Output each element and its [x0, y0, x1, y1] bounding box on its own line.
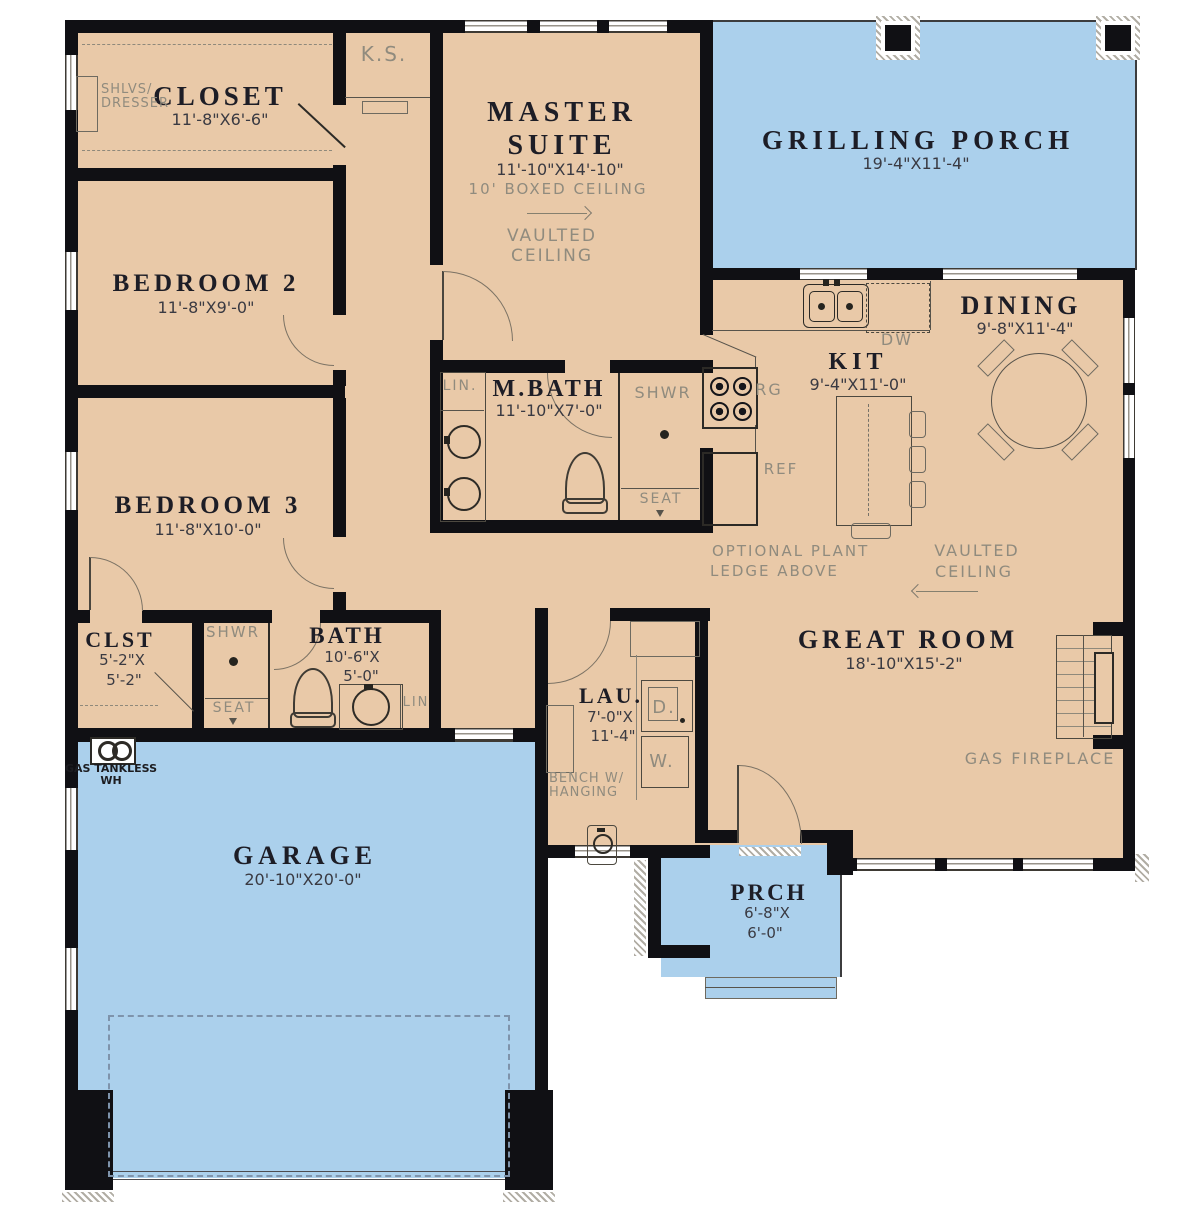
water-heater-label: GAS TANKLESS — [65, 763, 157, 775]
room-label-grilling-porch: GRILLING PORCH — [762, 126, 1074, 155]
room-label-master: MASTER — [487, 98, 637, 128]
burner — [710, 377, 729, 396]
room-label-garage: GARAGE — [233, 842, 377, 870]
wall — [867, 268, 943, 280]
sink-faucet — [834, 279, 840, 286]
plant-ledge-note: LEDGE ABOVE — [710, 563, 839, 580]
water-heater-valve — [597, 828, 605, 832]
window — [65, 252, 78, 310]
room-dims-master: 11'-10"X14'-10" — [496, 162, 623, 179]
room-label-great-room: GREAT ROOM — [798, 626, 1018, 654]
window — [857, 858, 935, 871]
room-dims-grilling-porch: 19'-4"X11'-4" — [862, 156, 969, 173]
room-dims-great-room: 18'-10"X15'-2" — [845, 656, 962, 673]
wall — [1123, 383, 1135, 395]
garage-entry-door — [455, 728, 513, 742]
range — [702, 367, 758, 429]
room-label-bath: BATH — [309, 624, 384, 648]
wall — [333, 20, 346, 105]
room-dims-clst: 5'-2" — [106, 673, 142, 689]
wall-hatch — [503, 1192, 555, 1202]
window — [65, 452, 78, 510]
window — [1123, 318, 1135, 383]
wall — [700, 20, 713, 280]
wall — [320, 610, 441, 623]
washer-label: W. — [649, 752, 674, 771]
window — [1023, 858, 1093, 871]
wall — [1123, 280, 1135, 318]
room-dims-dining: 9'-8"X11'-4" — [977, 321, 1074, 338]
water-heater-coil — [112, 741, 132, 761]
room-label-dining: DINING — [961, 292, 1082, 320]
wall — [695, 830, 738, 843]
island — [836, 396, 912, 526]
burner — [710, 402, 729, 421]
room-dims-kitchen: 9'-4"X11'-0" — [810, 377, 907, 394]
wall — [65, 310, 78, 452]
refrigerator-label: REF — [764, 462, 799, 478]
range-label: RG — [755, 382, 783, 399]
wall — [430, 20, 443, 265]
room-label-laundry: LAU. — [579, 684, 643, 707]
linen-divider — [400, 684, 401, 728]
wall — [333, 370, 346, 386]
wall — [840, 858, 857, 871]
wall — [65, 168, 345, 181]
wall — [648, 858, 661, 958]
faucet — [444, 488, 450, 496]
plant-ledge-note: OPTIONAL PLANT — [712, 543, 869, 560]
seat-marker — [656, 510, 664, 517]
window — [465, 20, 667, 33]
wall — [935, 858, 947, 871]
wall — [630, 845, 710, 858]
vaulted-note: VAULTED — [507, 227, 597, 245]
wall — [192, 623, 204, 728]
wall — [333, 592, 346, 611]
faucet — [444, 436, 450, 444]
shower-seat-line — [205, 698, 268, 699]
room-dims-garage: 20'-10"X20'-0" — [244, 872, 361, 889]
seat-marker — [229, 718, 237, 725]
wall — [535, 845, 575, 858]
shelves-label: DRESSER — [101, 97, 169, 111]
shower-seat-line — [621, 488, 699, 489]
room-dims-closet: 11'-8"X6'-6" — [172, 112, 269, 129]
linen-label: LIN — [403, 696, 430, 710]
wall — [142, 610, 272, 623]
seat-label: SEAT — [213, 701, 256, 716]
wall — [1123, 458, 1135, 870]
water-heater-label: WH — [100, 775, 121, 787]
wall — [527, 20, 540, 33]
stool — [909, 481, 926, 508]
island-dash — [868, 404, 869, 516]
vault-arrow-line — [916, 591, 978, 592]
room-label-porch: PRCH — [730, 881, 807, 905]
wall-hatch — [634, 860, 646, 956]
sink — [447, 425, 481, 459]
garage-door-outline — [108, 1015, 510, 1177]
sink — [447, 477, 481, 511]
wall — [65, 385, 345, 398]
wall — [1013, 858, 1023, 871]
sink-drain — [846, 303, 853, 310]
counter-edge — [755, 425, 756, 453]
garage-opening-line — [113, 1179, 505, 1180]
fireplace-label: GAS FIREPLACE — [965, 751, 1116, 768]
shower-head — [660, 430, 669, 439]
room-dims-bedroom2: 11'-8"X9'-0" — [158, 300, 255, 317]
room-label-bedroom2: BEDROOM 2 — [113, 271, 300, 298]
burner — [733, 402, 752, 421]
wall — [333, 181, 346, 315]
water-heater-top — [593, 834, 613, 854]
wall — [65, 20, 78, 55]
porch-post-core — [885, 25, 911, 51]
stool — [851, 523, 891, 539]
wall — [597, 20, 609, 33]
wall — [65, 1010, 78, 1090]
toilet-base — [562, 498, 608, 514]
garage-opening-line — [113, 1171, 505, 1172]
wall — [65, 850, 78, 948]
bench — [546, 705, 574, 773]
cabinet — [630, 621, 700, 657]
wall — [1093, 622, 1135, 636]
wall — [648, 945, 710, 958]
sink-faucet — [823, 279, 829, 286]
porch-step-line — [705, 987, 835, 988]
room-dims-porch: 6'-8"X — [744, 906, 790, 922]
porch-post-core — [1105, 25, 1131, 51]
wall — [610, 360, 713, 373]
wall — [535, 608, 548, 621]
vaulted-note: CEILING — [935, 564, 1013, 581]
room-dims-laundry: 7'-0"X — [587, 710, 633, 726]
closet-shelf-line — [82, 150, 332, 151]
porch-steps — [705, 977, 837, 999]
room-dims-laundry: 11'-4" — [590, 729, 635, 745]
wall — [65, 610, 90, 623]
shower-head — [229, 657, 238, 666]
dishwasher-label: DW — [881, 332, 913, 349]
dishwasher — [866, 283, 930, 333]
room-dims-porch: 6'-0" — [747, 926, 783, 942]
wall-hatch — [62, 1192, 114, 1202]
shower-divider — [268, 623, 270, 728]
window — [65, 788, 78, 850]
dryer-label: D. — [652, 698, 676, 717]
seat-label: SEAT — [640, 492, 683, 507]
firebox — [1094, 652, 1114, 724]
window — [1123, 395, 1135, 458]
stool — [909, 446, 926, 473]
linen-label: LIN. — [443, 379, 478, 394]
room-dims-bath: 10'-6"X — [324, 650, 379, 666]
toilet-base — [290, 712, 336, 728]
closet-shelf-line — [82, 44, 332, 45]
window — [943, 268, 1077, 280]
vaulted-note: CEILING — [511, 247, 593, 265]
fireplace-line — [1083, 635, 1084, 737]
vaulted-note: VAULTED — [934, 543, 1020, 560]
wall — [65, 20, 465, 33]
bench-label: HANGING — [549, 786, 618, 800]
room-dims-bath: 5'-0" — [343, 669, 379, 685]
wall — [429, 623, 441, 728]
closet-shelf-line — [80, 705, 158, 706]
stool — [909, 411, 926, 438]
vanity-divider — [440, 410, 484, 411]
ks-shelf — [362, 101, 408, 114]
ks-label: K.S. — [361, 44, 408, 65]
sink-drain — [818, 303, 825, 310]
room-label-master: SUITE — [507, 131, 616, 161]
room-label-mbath: M.BATH — [493, 377, 606, 402]
wall — [610, 608, 710, 621]
window — [65, 948, 78, 1010]
shower-divider — [618, 373, 620, 520]
ceiling-note: 10' BOXED CEILING — [469, 182, 648, 198]
wall — [65, 1090, 113, 1190]
room-dims-mbath: 11'-10"X7'-0" — [495, 403, 602, 420]
cabinet-line — [636, 655, 637, 800]
wall — [700, 280, 713, 335]
room-label-clst: CLST — [85, 628, 154, 651]
wall — [710, 268, 800, 280]
wall — [333, 398, 346, 537]
room-label-closet: CLOSET — [153, 82, 287, 111]
wall-hatch — [1135, 854, 1149, 882]
wall — [333, 165, 346, 181]
room-label-kitchen: KIT — [828, 350, 887, 375]
sink — [352, 688, 390, 726]
wall — [1077, 268, 1135, 280]
ks-counter-line — [345, 97, 430, 98]
door-threshold — [739, 847, 801, 856]
dresser — [76, 76, 98, 132]
wall — [505, 1090, 553, 1190]
wall — [1093, 858, 1135, 871]
room-label-bedroom3: BEDROOM 3 — [115, 493, 302, 520]
room-dims-clst: 5'-2"X — [99, 653, 145, 669]
dryer-knob — [680, 718, 685, 723]
floor-plan: CLOSET 11'-8"X6'-6" SHLVS/ DRESSER K.S. … — [0, 0, 1200, 1208]
shower-label: SHWR — [634, 385, 691, 402]
dining-table — [991, 353, 1087, 449]
shower-label: SHWR — [206, 625, 260, 641]
counter-edge — [930, 281, 931, 330]
burner — [733, 377, 752, 396]
room-dims-bedroom3: 11'-8"X10'-0" — [154, 522, 261, 539]
refrigerator — [702, 452, 758, 526]
window — [947, 858, 1013, 871]
